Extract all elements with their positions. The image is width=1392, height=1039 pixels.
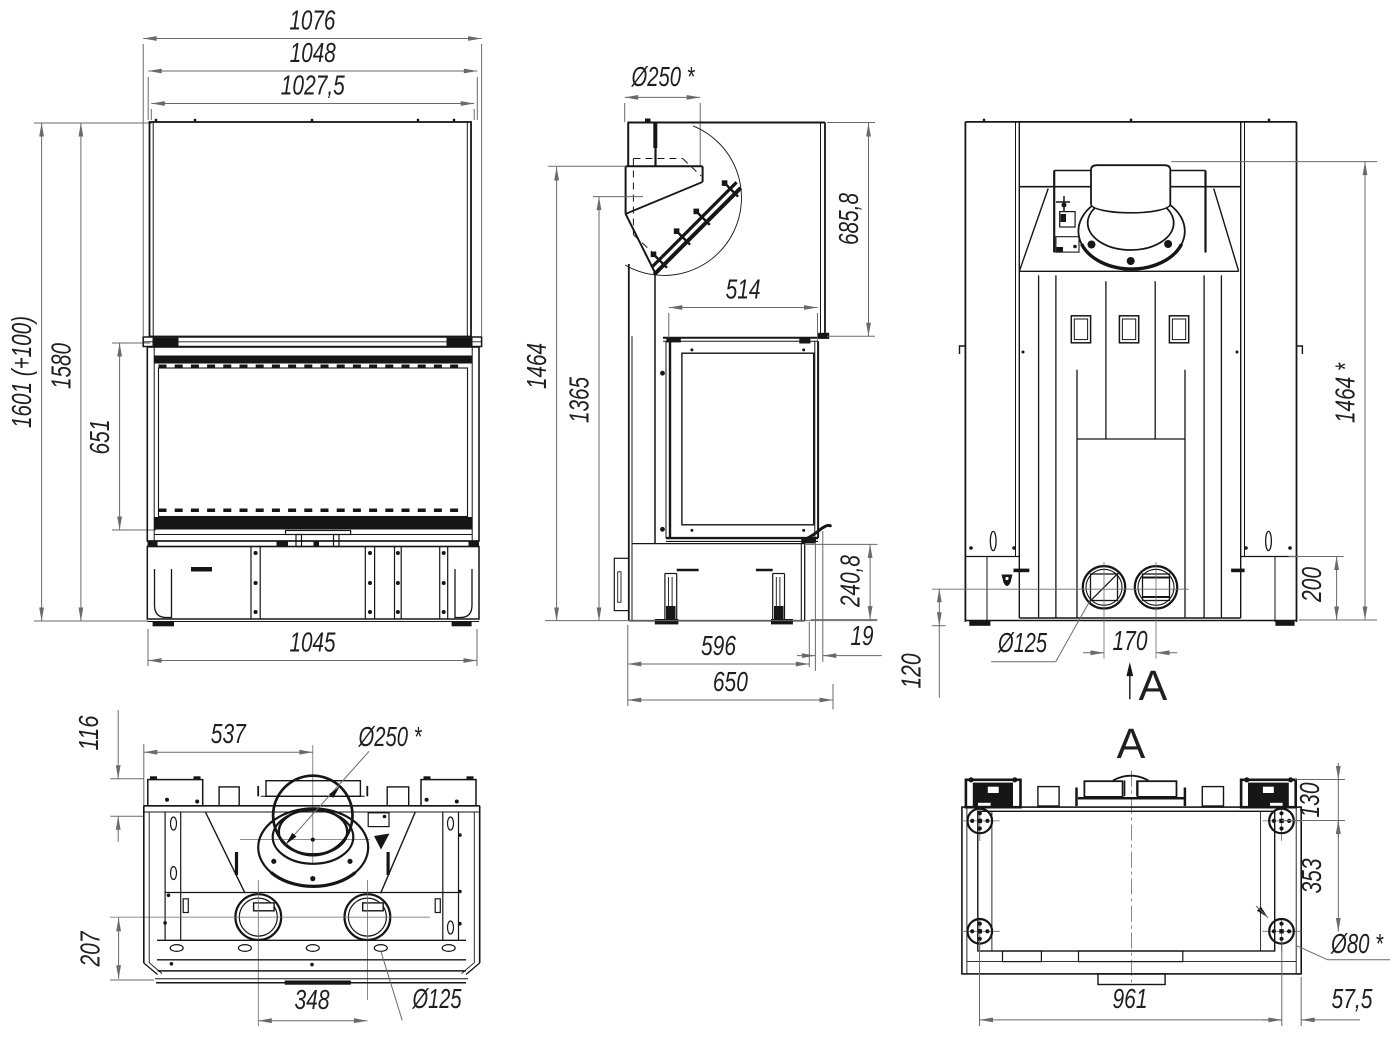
svg-text:A: A <box>1117 720 1146 768</box>
svg-text:685,8: 685,8 <box>833 193 864 245</box>
svg-text:19: 19 <box>851 620 874 651</box>
svg-text:1464 *: 1464 * <box>1330 362 1361 423</box>
svg-text:596: 596 <box>701 630 736 661</box>
svg-text:537: 537 <box>211 718 247 749</box>
svg-text:170: 170 <box>1113 625 1148 656</box>
svg-text:1580: 1580 <box>45 343 76 389</box>
svg-text:1365: 1365 <box>564 377 595 423</box>
svg-text:1027,5: 1027,5 <box>281 70 345 101</box>
svg-text:650: 650 <box>713 666 748 697</box>
svg-text:353: 353 <box>1296 858 1327 893</box>
svg-text:116: 116 <box>73 715 104 750</box>
svg-text:57,5: 57,5 <box>1332 983 1373 1014</box>
svg-text:A: A <box>1139 662 1168 710</box>
svg-text:514: 514 <box>726 274 761 305</box>
svg-text:348: 348 <box>295 984 330 1015</box>
svg-text:1076: 1076 <box>289 5 335 36</box>
svg-text:961: 961 <box>1113 983 1148 1014</box>
svg-text:Ø250 *: Ø250 * <box>631 61 696 92</box>
svg-text:1601 (+100): 1601 (+100) <box>6 316 37 428</box>
svg-text:207: 207 <box>75 930 106 967</box>
svg-text:651: 651 <box>84 420 115 455</box>
svg-text:1048: 1048 <box>290 37 336 68</box>
svg-text:240,8: 240,8 <box>835 555 866 608</box>
svg-text:1045: 1045 <box>290 627 336 658</box>
svg-text:120: 120 <box>896 653 927 688</box>
svg-text:Ø80 *: Ø80 * <box>1330 928 1384 959</box>
svg-text:200: 200 <box>1296 567 1327 603</box>
svg-text:1464: 1464 <box>521 343 552 389</box>
svg-text:Ø125: Ø125 <box>997 627 1047 658</box>
svg-text:130: 130 <box>1294 782 1325 817</box>
svg-text:Ø250 *: Ø250 * <box>358 721 423 752</box>
svg-text:Ø125: Ø125 <box>412 983 462 1014</box>
